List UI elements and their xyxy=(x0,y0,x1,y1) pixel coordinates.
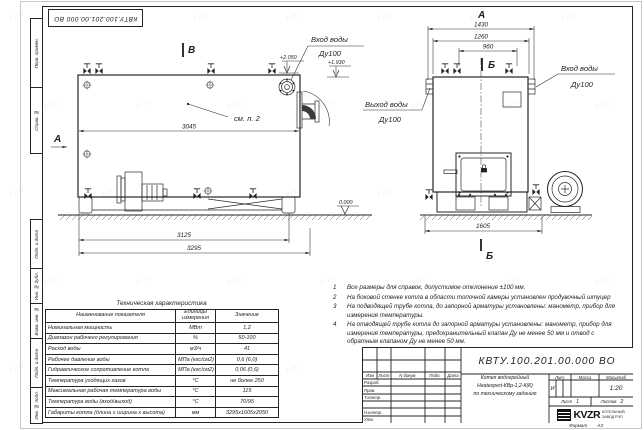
section-marker-b-top: Б xyxy=(482,58,495,71)
outlet-elbow xyxy=(297,91,329,128)
elevation-2050: +2.050 xyxy=(279,55,304,73)
document-number: КВТУ.100.201.00.000 ВО xyxy=(461,348,633,374)
table-row: Гидравлическое сопротивление котлаМПа (к… xyxy=(46,365,279,376)
base-frame xyxy=(437,192,527,212)
skid-frame xyxy=(79,197,295,213)
callout-see-note-2: см. п. 2 xyxy=(187,103,261,123)
note-item: 2 На боковой стенке котла в области топо… xyxy=(333,294,625,303)
table-row: Диапазон рабочего регулирования%50-100 xyxy=(46,333,279,344)
lifting-lug-icon xyxy=(83,150,92,159)
sheets-cell: Листов2 xyxy=(591,397,633,406)
side-view: В см. п. 2 3045 3125 xyxy=(51,35,372,256)
sig-row-razrab: Разраб. xyxy=(364,379,391,386)
elevation-1930: +1.930 xyxy=(327,60,351,77)
valve-icon xyxy=(532,185,539,195)
scale-value: 1:20 xyxy=(599,380,633,397)
inspection-opening xyxy=(503,92,521,107)
sig-row-utv: Утв. xyxy=(364,416,391,423)
svg-text:3125: 3125 xyxy=(177,232,192,239)
lit-value: И xyxy=(549,380,556,397)
sig-header-docnum: N докум. xyxy=(391,372,425,379)
format-label: ФорматА3 xyxy=(540,423,632,428)
sig-row-nkontr: Н.контр. xyxy=(364,408,391,416)
lock-icon xyxy=(481,165,487,173)
table-row: Температура воды (вход/выход)°С70/95 xyxy=(46,397,279,408)
tech-characteristics: Техническая характеристика Наименование … xyxy=(45,300,278,418)
company-logo: KVZR КОТЕЛЬНЫЙ ЗАВОД РЭП xyxy=(549,406,633,423)
tech-table: Наименование показателя Единицы измерени… xyxy=(45,309,279,418)
svg-text:А: А xyxy=(53,134,61,145)
notes-list: 1 Все размеры для справок, допустимое от… xyxy=(333,284,625,348)
svg-text:0.000: 0.000 xyxy=(339,200,353,206)
dim-3045: 3045 xyxy=(79,124,299,132)
sheet-cell: Лист1 xyxy=(549,397,591,406)
drawing-title: Котел водогрейный Heatexpert-КВр-1,2-К(К… xyxy=(461,375,549,422)
title-block: Изм Лист N докум. Подп. Дата Разраб. Про… xyxy=(362,347,633,423)
note-text: На отводящей трубе котла до запорной арм… xyxy=(347,321,625,347)
svg-text:+2.050: +2.050 xyxy=(280,55,297,61)
table-row: Номинальная мощностьМВт1,2 xyxy=(46,323,279,334)
table-row: Максимальная рабочая температура воды°С1… xyxy=(46,386,279,397)
svg-text:Вход воды: Вход воды xyxy=(311,35,348,44)
sig-row-tkontr: Т.контр. xyxy=(364,394,391,401)
svg-text:Вход воды: Вход воды xyxy=(561,64,598,73)
table-row: Габариты котла (длина х ширина х высота)… xyxy=(46,407,279,418)
valve-icon xyxy=(83,64,90,74)
section-marker-b-bottom: Б xyxy=(481,239,493,262)
sig-header-data: Дата xyxy=(445,372,461,379)
svg-text:+1.930: +1.930 xyxy=(328,60,345,66)
svg-text:В: В xyxy=(188,45,195,56)
lifting-lug-icon xyxy=(83,81,92,90)
kvzr-logo-icon xyxy=(557,409,571,421)
svg-text:960: 960 xyxy=(483,44,494,51)
svg-text:Б: Б xyxy=(486,251,493,262)
dim-3295: 3295 xyxy=(79,228,310,256)
svg-text:Выход воды: Выход воды xyxy=(365,100,408,109)
drawing-sheet: kvzrkvzrkvzrkvzrkvzrkvzrkvzrkvzrkvzrkvzr… xyxy=(0,0,644,430)
valve-icon xyxy=(441,64,448,74)
pump-motor xyxy=(117,172,167,211)
ground-line-right xyxy=(420,215,592,220)
table-row: Температура уходящих газов°Сне более 250 xyxy=(46,375,279,386)
note-item: 4 На отводящей трубе котла до запорной а… xyxy=(333,321,625,347)
valve-icon xyxy=(425,190,432,200)
valve-icon xyxy=(453,64,460,74)
inlet-flange xyxy=(279,79,295,95)
sig-header-izm: Изм xyxy=(363,372,377,379)
table-row: Рабочее давление водыМПа (кгс/см2)0,6 (6… xyxy=(46,354,279,365)
label-outlet: Выход воды Ду100 xyxy=(363,88,430,124)
outlet-flange-left xyxy=(426,79,433,94)
svg-text:1430: 1430 xyxy=(474,22,489,29)
elevation-zero: 0.000 xyxy=(337,200,359,214)
tech-table-title: Техническая характеристика xyxy=(45,300,278,307)
boiler-body-front xyxy=(433,77,528,192)
section-marker-v: В xyxy=(183,43,195,57)
note-text: На боковой стенке котла в области топочн… xyxy=(347,294,611,303)
svg-text:3045: 3045 xyxy=(182,124,197,131)
label-inlet-top: Вход воды Ду100 xyxy=(291,35,364,80)
inlet-flange-right xyxy=(528,79,535,94)
note-item: 3 На подводящей трубе котла, до запорной… xyxy=(333,303,625,320)
svg-text:Ду100: Ду100 xyxy=(570,80,594,89)
front-view: А 1430 1260 960 Б xyxy=(327,10,615,262)
svg-text:1260: 1260 xyxy=(474,34,489,41)
kvzr-logo-text: KVZR xyxy=(573,409,600,421)
svg-text:Ду100: Ду100 xyxy=(378,115,402,124)
lifting-lug-icon xyxy=(206,81,215,90)
view-marker-a-left: А xyxy=(51,134,67,147)
ground-line-left xyxy=(58,215,372,220)
svg-text:см. п. 2: см. п. 2 xyxy=(234,114,261,123)
note-text: Все размеры для справок, допустимое откл… xyxy=(347,284,525,293)
company-name: КОТЕЛЬНЫЙ ЗАВОД РЭП xyxy=(602,410,625,419)
valve-icon xyxy=(207,64,214,74)
svg-text:Б: Б xyxy=(488,60,495,71)
boiler-body-side xyxy=(78,75,300,197)
note-item: 1 Все размеры для справок, допустимое от… xyxy=(333,284,625,293)
valve-icon xyxy=(268,64,275,74)
view-marker-a-top: А xyxy=(477,10,485,21)
valve-icon xyxy=(505,64,512,74)
tech-table-header: Наименование показателя Единицы измерени… xyxy=(46,310,279,323)
sig-header-list: Лист xyxy=(377,372,391,379)
svg-text:1605: 1605 xyxy=(476,223,491,230)
svg-text:Ду100: Ду100 xyxy=(318,49,342,58)
svg-text:3295: 3295 xyxy=(187,245,202,252)
lifting-lug-icon xyxy=(204,187,213,196)
sig-row-prov: Пров. xyxy=(364,386,391,394)
note-text: На подводящей трубе котла, до запорной а… xyxy=(347,303,625,320)
sig-row-blank xyxy=(364,401,391,408)
label-inlet-right: Вход воды Ду100 xyxy=(536,64,615,89)
table-row: Расход водым3/ч41 xyxy=(46,344,279,355)
valve-icon xyxy=(95,64,102,74)
furnace-door xyxy=(444,153,511,196)
sig-header-podp: Подп. xyxy=(425,372,445,379)
mass-header: Масса xyxy=(571,374,599,380)
